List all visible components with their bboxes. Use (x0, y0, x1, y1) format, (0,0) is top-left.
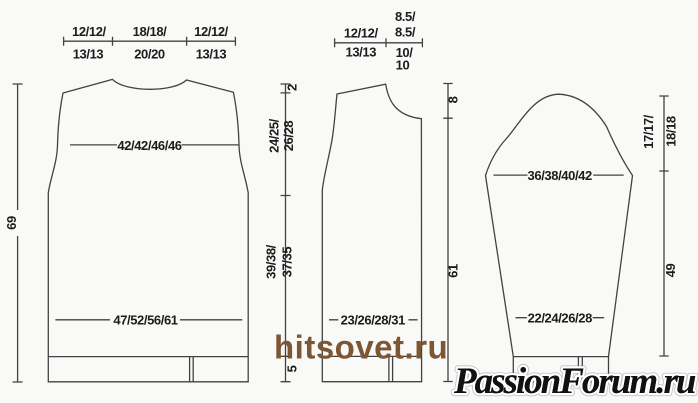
svg-text:23/26/28/31: 23/26/28/31 (341, 313, 405, 328)
svg-text:20/20: 20/20 (134, 46, 165, 61)
svg-text:37/35: 37/35 (279, 247, 294, 278)
svg-text:8.5/: 8.5/ (395, 9, 416, 24)
svg-text:12/12/: 12/12/ (194, 24, 229, 39)
svg-text:18/18/: 18/18/ (133, 24, 168, 39)
svg-text:61: 61 (446, 264, 461, 278)
svg-text:39/38/: 39/38/ (263, 244, 278, 279)
svg-text:hitsovet.ru: hitsovet.ru (274, 329, 448, 366)
svg-text:2: 2 (285, 84, 300, 91)
svg-text:69: 69 (4, 216, 19, 230)
svg-text:36/38/40/42: 36/38/40/42 (528, 168, 592, 183)
svg-text:42/42/46/46: 42/42/46/46 (117, 138, 181, 153)
svg-text:13/13: 13/13 (196, 46, 227, 61)
svg-text:10: 10 (396, 57, 410, 72)
svg-text:17/17/: 17/17/ (641, 114, 656, 149)
svg-text:13/13: 13/13 (73, 46, 104, 61)
svg-text:49: 49 (663, 264, 678, 278)
svg-text:47/52/56/61: 47/52/56/61 (113, 313, 177, 328)
svg-text:12/12/: 12/12/ (344, 26, 379, 41)
svg-text:22/24/26/28: 22/24/26/28 (528, 311, 592, 326)
svg-text:26/28: 26/28 (281, 121, 296, 152)
svg-text:12/12/: 12/12/ (72, 24, 107, 39)
svg-text:24/25/: 24/25/ (267, 118, 282, 153)
svg-text:8: 8 (446, 96, 461, 103)
svg-text:18/18: 18/18 (663, 116, 678, 147)
svg-text:5: 5 (285, 365, 300, 372)
svg-text:8.5/: 8.5/ (395, 24, 416, 39)
svg-text:PassionForum.ru: PassionForum.ru (453, 361, 696, 402)
svg-text:13/13: 13/13 (346, 45, 377, 60)
